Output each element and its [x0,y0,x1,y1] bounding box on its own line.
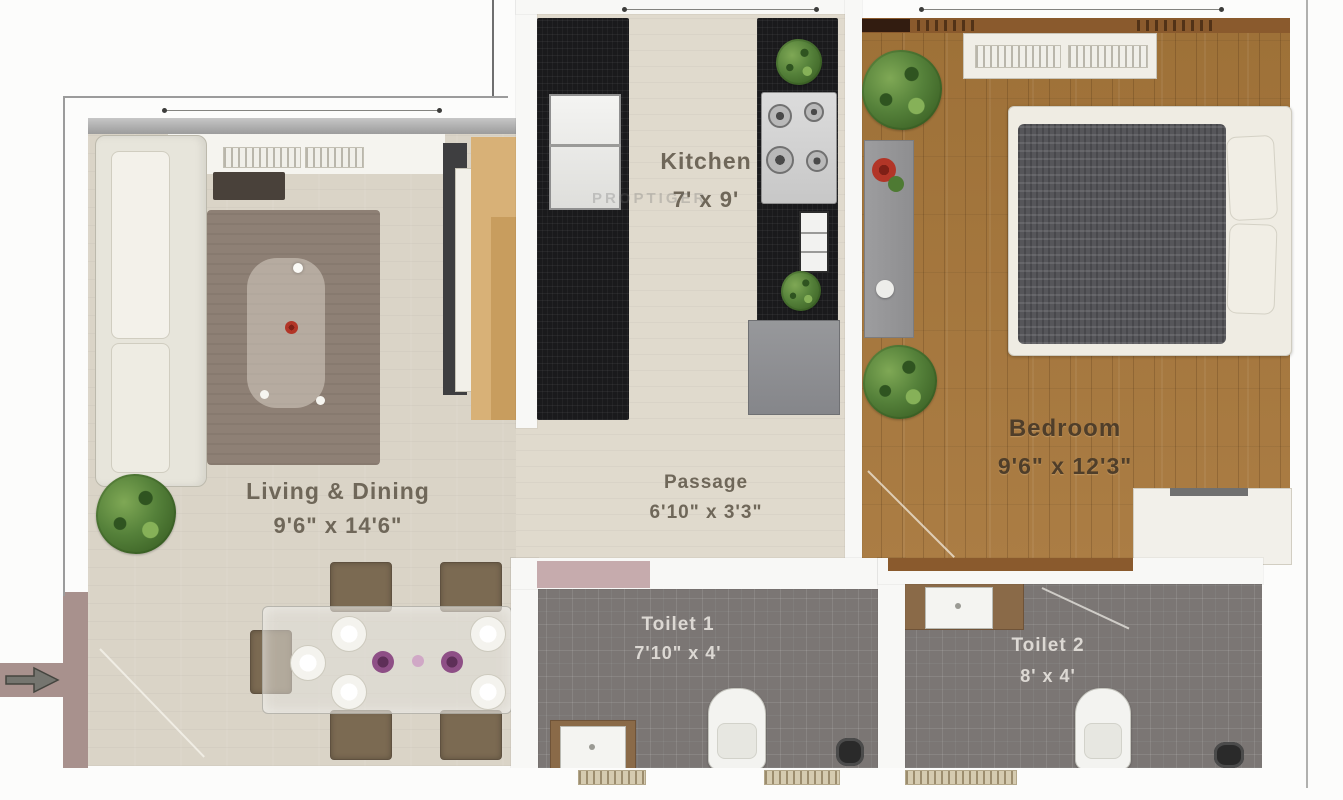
room-dims: 6'10" x 3'3" [596,500,816,526]
wall [845,0,862,563]
floor-drain [836,738,864,766]
room-name: Kitchen [606,146,806,177]
floor-lamp [293,263,303,273]
wall-line [63,96,65,596]
wall [516,0,845,14]
room-label-toilet1: Toilet 1 7'10" x 4' [563,612,793,665]
door-swing-arc [1042,587,1130,629]
dimension-line [920,9,1223,10]
window-icon [223,147,301,168]
pillow [1226,135,1278,221]
bed-blanket [1018,124,1226,344]
wall-line [492,0,494,98]
bedroom-top-wall-dark [862,19,910,32]
room-living-dining: Living & Dining 9'6" x 14'6" [88,118,516,766]
room-name: Toilet 2 [928,633,1168,659]
room-kitchen-passage: Kitchen 7' x 9' PROPTIGER Passage 6'10" … [516,0,845,563]
flower-leaves [888,176,904,192]
plate [470,616,506,652]
wardrobe-slot [1170,488,1248,496]
bowl-purple [372,651,394,673]
tv-unit [213,172,285,200]
switch-panel [799,211,829,273]
lamp-foot [260,390,269,399]
wall-line [1306,0,1308,788]
door-sill [764,770,840,785]
toilet-seat [717,723,757,759]
dining-chair [440,710,502,760]
window-icon [305,147,364,168]
door-sill [578,770,646,785]
floor-plan: Living & Dining 9'6" x 14'6" [0,0,1343,800]
stove-burner [804,102,824,122]
room-label-bedroom: Bedroom 9'6" x 12'3" [920,413,1210,482]
wall [516,0,537,428]
plate [331,674,367,710]
wardrobe-door [975,45,1061,68]
entrance-arrow-icon [4,665,62,695]
bottom-wall-band [0,768,1343,800]
dimension-line [163,110,441,111]
floor-drain [1214,742,1244,768]
plant-icon [781,271,821,311]
plate [331,616,367,652]
stove-burner [806,150,828,172]
rug-runner [247,258,325,408]
room-toilet2: Toilet 2 8' x 4' [903,583,1262,768]
kitchen-cabinet-gray [748,320,840,415]
room-bedroom: Bedroom 9'6" x 12'3" [860,18,1290,563]
plant-icon [776,39,822,85]
toilet-seat [1084,723,1122,759]
wardrobe-bottom [1133,488,1292,565]
room-name: Bedroom [920,413,1210,445]
wardrobe-door [1068,45,1148,68]
sofa-cushion [111,343,170,473]
dining-chair [440,562,502,612]
wall-line [64,96,508,98]
dresser-bowl [876,280,894,298]
plate [470,674,506,710]
faucet-dot [955,603,961,609]
window-icon [1137,20,1217,31]
door-sill [905,770,1017,785]
bowl-pink [412,655,424,667]
living-top-wall [88,118,516,134]
shower-wall-pink [537,561,650,588]
faucet-dot [589,744,595,750]
toilet-bowl-icon [708,688,766,770]
plate [290,645,326,681]
kitchen-counter-left [537,18,629,420]
wall [878,558,905,768]
toilet-bowl-icon [1075,688,1131,770]
room-dims: 8' x 4' [928,664,1168,688]
room-toilet1: Toilet 1 7'10" x 4' [533,588,880,768]
room-name: Toilet 1 [563,612,793,638]
window-icon [917,20,980,31]
room-label-toilet2: Toilet 2 8' x 4' [928,633,1168,688]
door-swing-arc [99,648,205,757]
plant-icon [863,345,937,419]
plant-icon [862,50,942,130]
stove-burner [768,104,792,128]
dimension-line [623,9,818,10]
room-name: Passage [596,470,816,496]
flower-red [285,321,298,334]
room-name: Living & Dining [198,476,478,507]
plant-icon [96,474,176,554]
bowl-purple [441,651,463,673]
room-label-living: Living & Dining 9'6" x 14'6" [198,476,478,541]
room-dims: 7'10" x 4' [563,641,793,665]
watermark: PROPTIGER [592,190,707,207]
room-dims: 9'6" x 14'6" [198,511,478,541]
wall-wood-band [888,558,1133,571]
dining-chair [330,562,392,612]
room-dims: 9'6" x 12'3" [920,451,1210,482]
lamp-foot [316,396,325,405]
media-unit-wood-shelf [491,217,516,420]
room-label-passage: Passage 6'10" x 3'3" [596,470,816,525]
dining-chair [330,710,392,760]
pillow [1226,223,1277,315]
wall [511,558,538,768]
sofa-cushion [111,151,170,339]
